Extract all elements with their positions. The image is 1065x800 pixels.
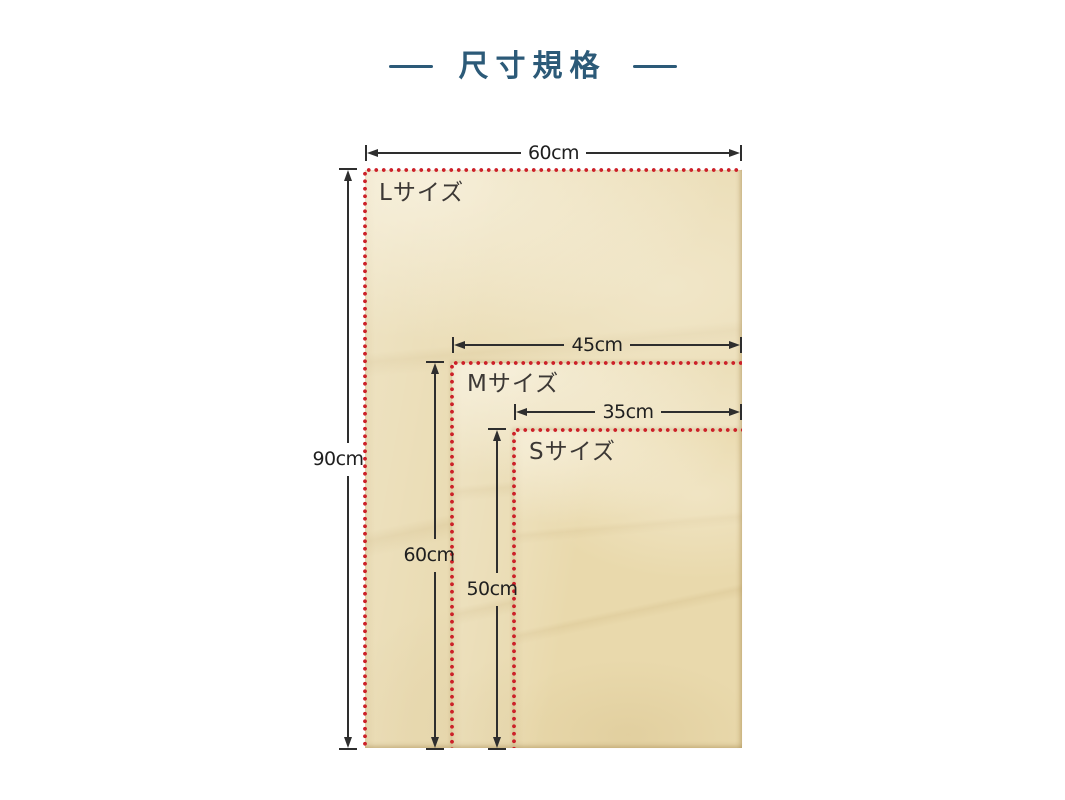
sheet-size-s (514, 430, 742, 748)
dim-height-l: 90cm (338, 168, 358, 750)
size-label-s: Sサイズ (529, 441, 616, 464)
dim-height-m: 60cm (425, 361, 445, 750)
dim-tick (740, 145, 742, 161)
dotted-top-edge-l (365, 168, 742, 172)
dim-line (434, 572, 436, 737)
dim-width-l: 60cm (365, 145, 742, 161)
dim-tick (339, 748, 357, 750)
arrowhead-right-icon (729, 408, 740, 416)
title-row: 尺寸規格 (0, 50, 1065, 83)
dim-label-height-m: 60cm (403, 539, 454, 572)
dim-line (347, 476, 349, 738)
dim-line (527, 411, 595, 413)
dim-tick (488, 748, 506, 750)
title-dash-left-icon (389, 65, 433, 68)
dim-line (496, 606, 498, 738)
size-label-m: Mサイズ (467, 373, 559, 396)
dotted-left-edge-l (363, 170, 367, 748)
dim-height-s: 50cm (487, 428, 507, 750)
dim-tick (426, 748, 444, 750)
page-title: 尺寸規格 (459, 50, 607, 83)
arrowhead-right-icon (729, 341, 740, 349)
arrowhead-down-icon (493, 737, 501, 748)
size-label-l: Lサイズ (379, 182, 464, 205)
arrowhead-left-icon (454, 341, 465, 349)
dim-width-m: 45cm (452, 337, 742, 353)
dim-tick (740, 404, 742, 420)
dim-label-width-s: 35cm (595, 403, 660, 422)
dim-label-width-m: 45cm (564, 336, 629, 355)
dotted-top-edge-s (514, 428, 742, 432)
arrowhead-up-icon (431, 363, 439, 374)
dim-line (378, 152, 521, 154)
dim-line (586, 152, 729, 154)
dim-line (630, 344, 729, 346)
arrowhead-right-icon (729, 149, 740, 157)
dotted-top-edge-m (452, 361, 742, 365)
dim-width-s: 35cm (514, 404, 742, 420)
dim-tick (740, 337, 742, 353)
arrowhead-up-icon (344, 170, 352, 181)
arrowhead-down-icon (344, 737, 352, 748)
dim-label-width-l: 60cm (521, 144, 586, 163)
size-spec-diagram: 尺寸規格 Lサイズ Mサイズ Sサイズ 60cm 45cm 35c (0, 0, 1065, 800)
arrowhead-up-icon (493, 430, 501, 441)
arrowhead-down-icon (431, 737, 439, 748)
dim-line (434, 374, 436, 539)
dim-line (661, 411, 729, 413)
arrowhead-left-icon (516, 408, 527, 416)
dim-label-height-s: 50cm (466, 573, 517, 606)
arrowhead-left-icon (367, 149, 378, 157)
title-dash-right-icon (633, 65, 677, 68)
dim-label-height-l: 90cm (312, 443, 363, 476)
dim-line (347, 181, 349, 443)
dim-line (496, 441, 498, 573)
dim-line (465, 344, 564, 346)
